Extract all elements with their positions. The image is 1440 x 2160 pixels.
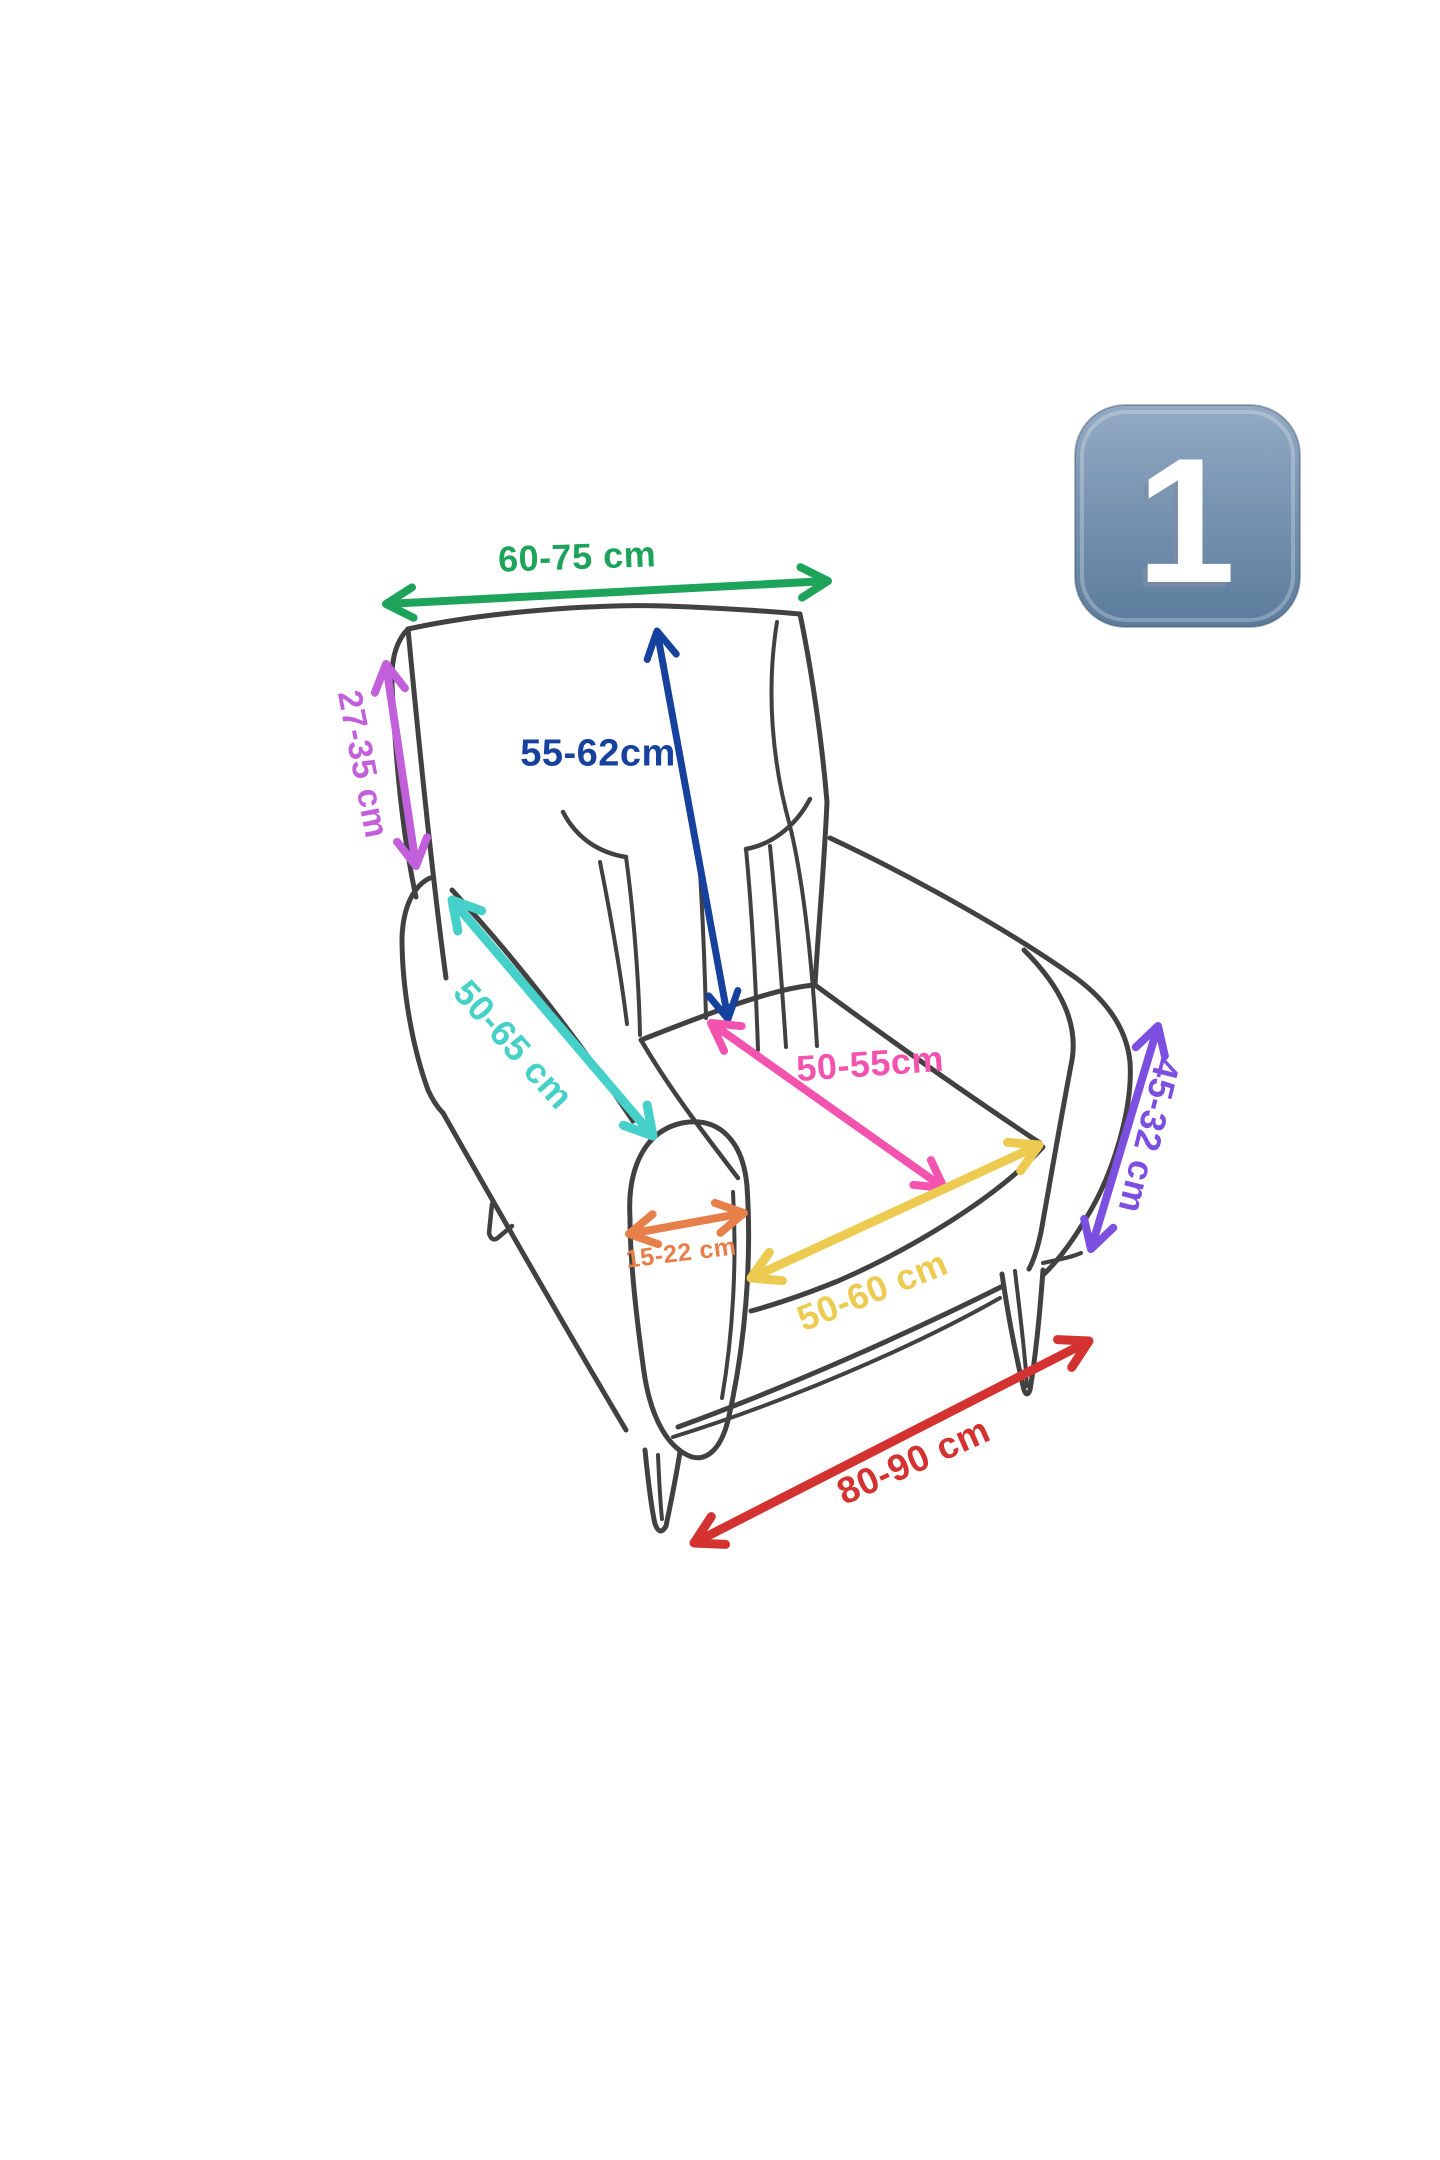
left-armrest-front-panel	[630, 1122, 749, 1458]
dimension-labels-layer: 60-75 cm27-35 cm55-62cm50-65 cm50-55cm15…	[330, 533, 1189, 1512]
front-left-leg-seam	[658, 1455, 662, 1519]
dimension-arrow-back-height	[647, 631, 738, 1019]
cushion-pleat	[600, 862, 627, 1024]
cushion-seam-right	[746, 799, 810, 849]
backrest-left-edge	[408, 629, 446, 978]
armchair-dimension-diagram: 60-75 cm27-35 cm55-62cm50-65 cm50-55cm15…	[0, 0, 1440, 2160]
dimension-label-back-width: 60-75 cm	[497, 533, 656, 579]
armchair-sketch	[392, 606, 1130, 1531]
cushion-pleat	[770, 846, 786, 1047]
cushion-seam-left	[563, 812, 626, 857]
dimension-arrows-layer	[375, 567, 1165, 1544]
right-armrest-inner-edge	[1024, 950, 1073, 1269]
step-badge: 1 1	[1075, 405, 1300, 627]
dimension-arrow-base-width	[694, 1340, 1089, 1545]
dimension-label-armrest-length: 50-65 cm	[446, 972, 582, 1117]
dimension-label-back-side-depth: 27-35 cm	[330, 687, 396, 841]
seat-left-edge	[641, 1040, 738, 1178]
cushion-pleat	[746, 849, 758, 1050]
left-armrest-outer-edge	[443, 1113, 626, 1430]
cushion-pleat	[626, 857, 640, 1035]
backrest-top-edge	[408, 606, 800, 629]
dimension-label-back-height: 55-62cm	[520, 733, 676, 775]
backrest-right-edge	[800, 614, 827, 985]
step-badge-number: 1	[1137, 421, 1236, 620]
diagram-canvas: 60-75 cm27-35 cm55-62cm50-65 cm50-55cm15…	[0, 0, 1440, 2160]
